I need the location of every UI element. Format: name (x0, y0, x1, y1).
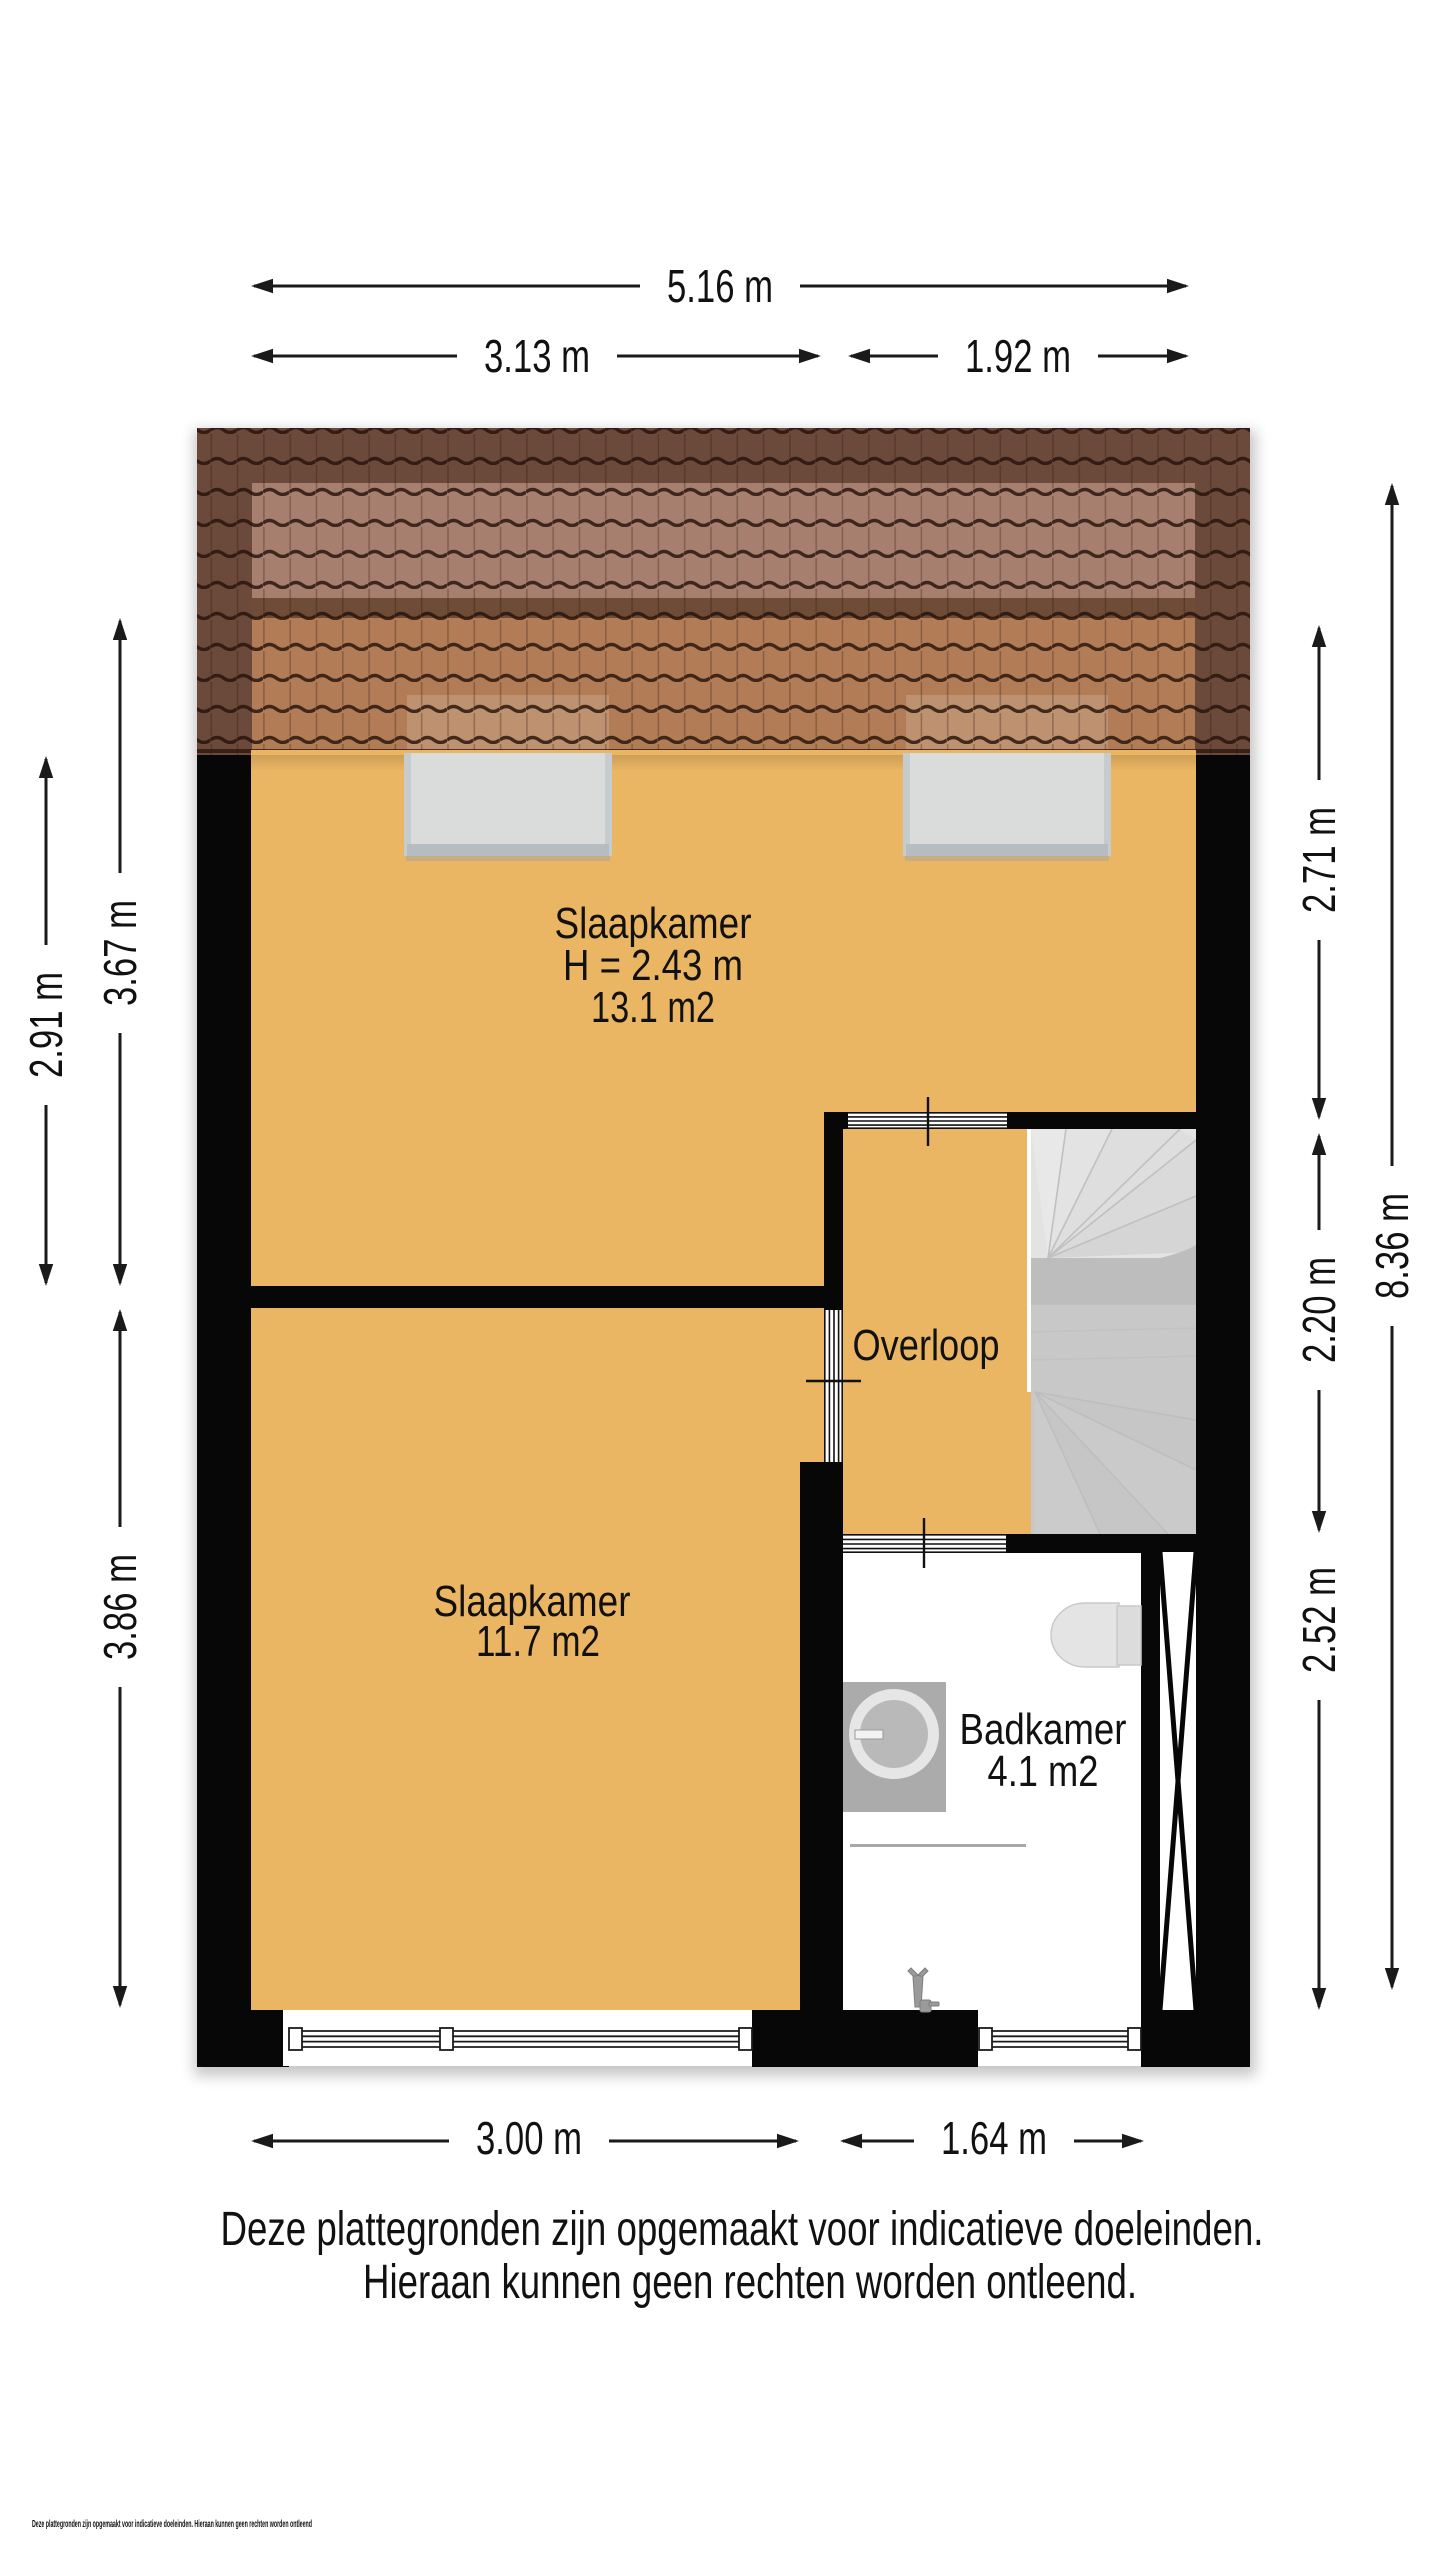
svg-text:8.36 m: 8.36 m (1366, 1193, 1418, 1299)
svg-text:1.92 m: 1.92 m (965, 330, 1071, 382)
svg-text:2.20 m: 2.20 m (1293, 1257, 1345, 1363)
svg-text:4.1 m2: 4.1 m2 (988, 1747, 1099, 1796)
svg-text:Hieraan kunnen geen rechten wo: Hieraan kunnen geen rechten worden ontle… (363, 2256, 1137, 2309)
svg-text:3.13 m: 3.13 m (484, 330, 590, 382)
svg-text:5.16 m: 5.16 m (667, 260, 773, 312)
svg-text:3.86 m: 3.86 m (94, 1554, 146, 1660)
svg-text:Deze plattegronden zijn opgema: Deze plattegronden zijn opgemaakt voor i… (221, 2203, 1264, 2256)
svg-text:3.00 m: 3.00 m (476, 2112, 582, 2164)
svg-text:1.64 m: 1.64 m (941, 2112, 1047, 2164)
svg-text:3.67 m: 3.67 m (94, 900, 146, 1006)
svg-text:2.71 m: 2.71 m (1293, 807, 1345, 913)
svg-text:2.91 m: 2.91 m (20, 972, 72, 1078)
svg-text:2.52 m: 2.52 m (1293, 1567, 1345, 1673)
svg-text:Overloop: Overloop (853, 1321, 1000, 1370)
svg-text:13.1 m2: 13.1 m2 (591, 983, 715, 1032)
svg-text:Deze plattegronden zijn opgema: Deze plattegronden zijn opgemaakt voor i… (32, 2519, 312, 2530)
svg-text:11.7 m2: 11.7 m2 (476, 1617, 600, 1666)
